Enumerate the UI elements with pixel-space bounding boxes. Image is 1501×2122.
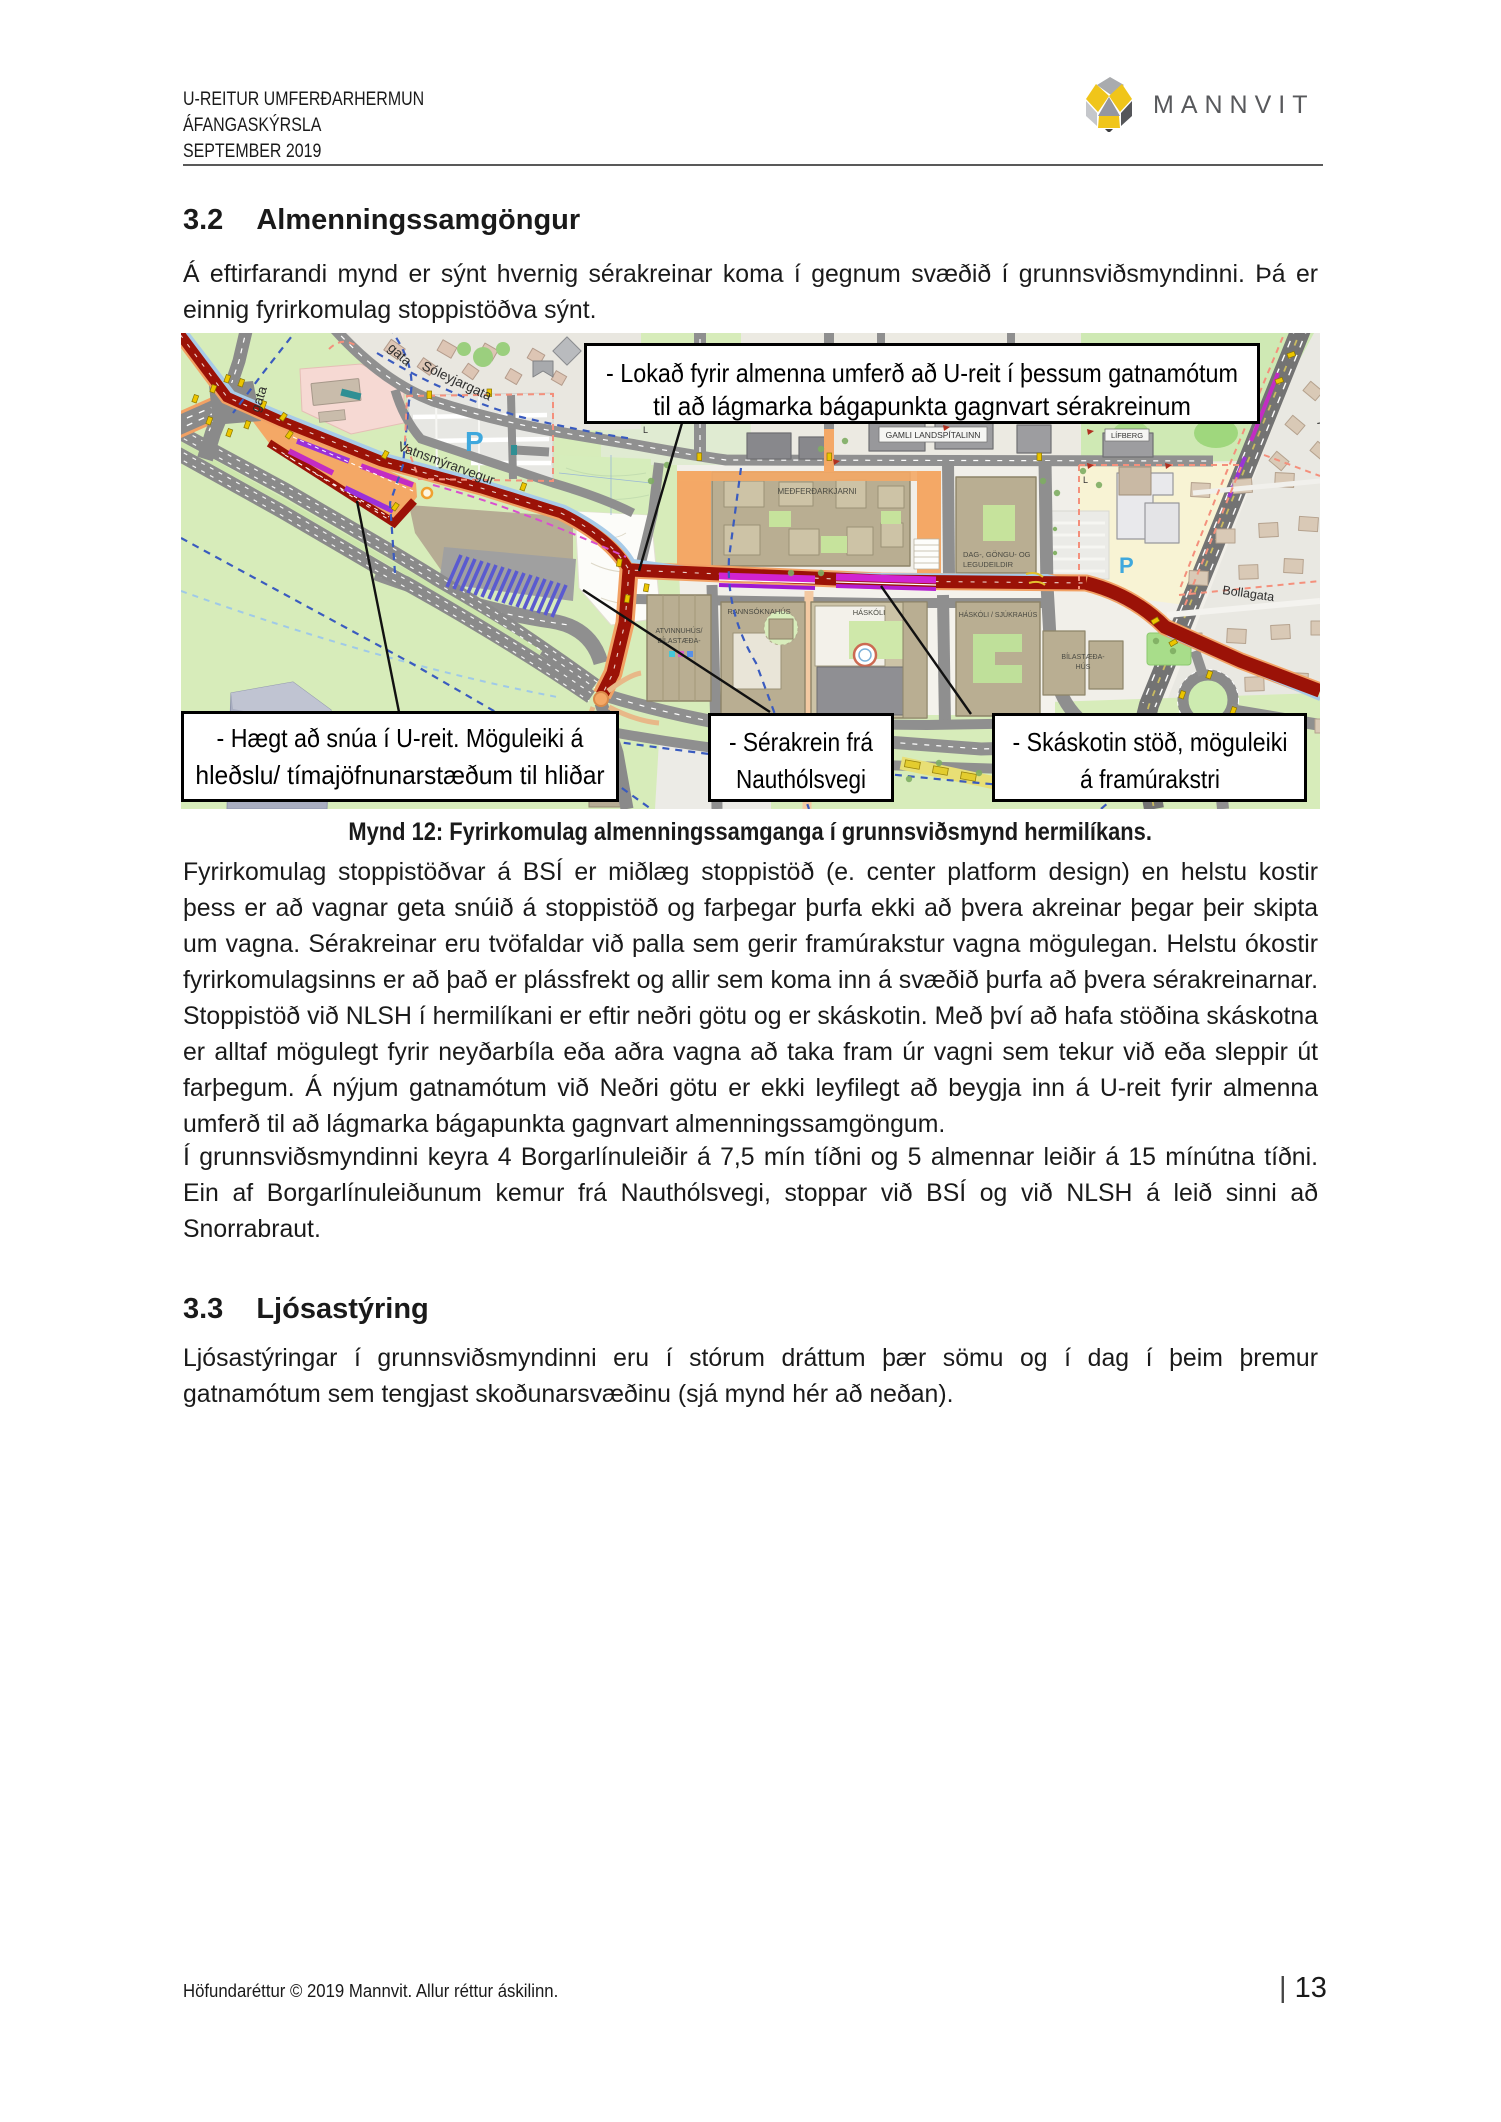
svg-text:P: P — [465, 426, 484, 457]
svg-text:HÚS: HÚS — [1076, 662, 1091, 671]
svg-text:LEGUDEILDIR: LEGUDEILDIR — [963, 560, 1014, 569]
svg-text:BÍLASTÆÐA-: BÍLASTÆÐA- — [1061, 652, 1105, 661]
svg-text:L: L — [643, 425, 648, 435]
svg-text:HÁSKÓLI / SJÚKRAHÚS: HÁSKÓLI / SJÚKRAHÚS — [959, 610, 1038, 619]
svg-text:ATVINNUHÚS/: ATVINNUHÚS/ — [656, 626, 703, 635]
svg-text:DAG-, GÖNGU- OG: DAG-, GÖNGU- OG — [963, 550, 1031, 559]
svg-text:MEÐFERÐARKJARNI: MEÐFERÐARKJARNI — [777, 487, 856, 496]
svg-text:L: L — [1083, 475, 1088, 485]
svg-text:LÍFBERG: LÍFBERG — [1111, 431, 1143, 440]
svg-text:GAMLI LANDSPÍTALINN: GAMLI LANDSPÍTALINN — [886, 430, 981, 440]
svg-text:RANNSÓKNAHÚS: RANNSÓKNAHÚS — [727, 607, 790, 616]
svg-text:HÁSKÓLI: HÁSKÓLI — [853, 608, 886, 617]
svg-text:P: P — [1119, 553, 1134, 578]
